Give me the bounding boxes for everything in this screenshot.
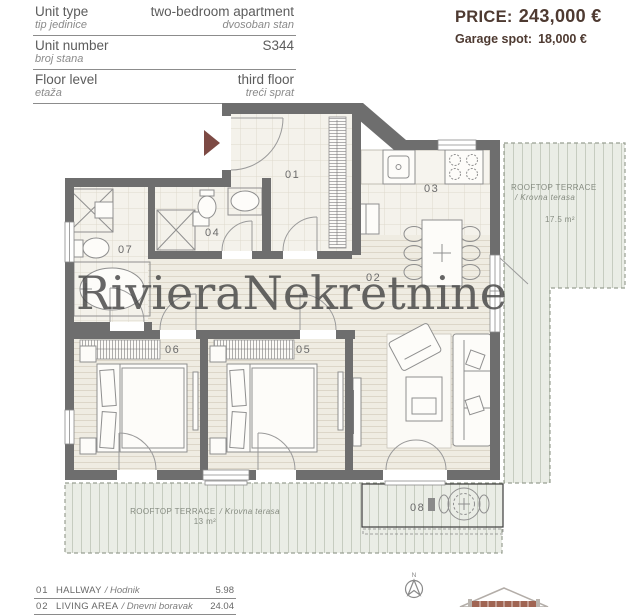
room-label-03: 03 [424, 183, 439, 195]
legend-row-living-area: 02 LIVING AREA / Dnevni boravak 24.04 [34, 599, 236, 615]
room-label-04: 04 [205, 227, 220, 239]
room-label-07: 07 [118, 244, 133, 256]
terrace-08-furniture [362, 484, 503, 534]
builder-logo [460, 588, 548, 607]
legend-name: HALLWAY [56, 585, 102, 596]
legend-num: 01 [36, 585, 56, 596]
legend-localized: / Hodnik [105, 585, 140, 596]
room-legend: 01 HALLWAY / Hodnik 5.98 02 LIVING AREA … [34, 583, 236, 615]
terrace-bottom-area: 13 m² [194, 517, 216, 526]
floorplan-sheet: { "header": { "rows": [ {"label": "Unit … [0, 0, 631, 607]
terrace-right-subtitle: / Krovna terasa [514, 193, 575, 202]
legend-area: 5.98 [216, 585, 235, 596]
compass-icon: N [406, 572, 423, 598]
room-label-01: 01 [285, 169, 300, 181]
compass-north-label: N [412, 572, 417, 579]
terrace-right-title: ROOFTOP TERRACE [511, 183, 597, 192]
terrace-bottom-title: ROOFTOP TERRACE/ Krovna terasa [130, 507, 280, 516]
floor-plan: 01 02 03 04 05 06 07 08 ROOFTOP TERRACE … [0, 0, 631, 607]
room-label-08: 08 [410, 502, 425, 514]
room-label-05: 05 [296, 344, 311, 356]
terrace-right-area: 17.5 m² [545, 215, 575, 224]
entrance-arrow-icon [204, 130, 220, 156]
watermark: RivieraNekretnine [76, 266, 507, 320]
legend-row-hallway: 01 HALLWAY / Hodnik 5.98 [34, 583, 236, 599]
room-label-06: 06 [165, 344, 180, 356]
